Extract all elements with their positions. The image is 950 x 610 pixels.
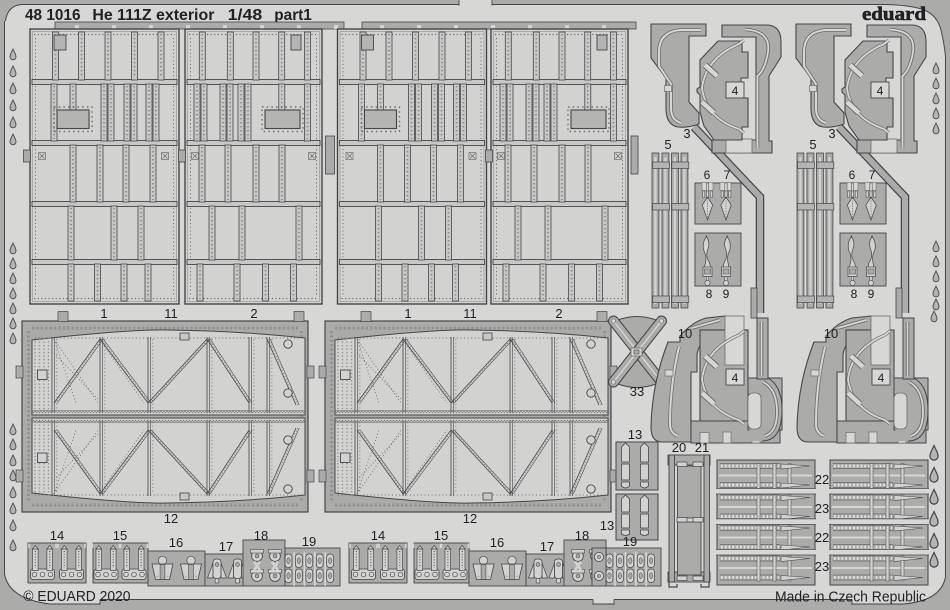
svg-text:8: 8 [851,287,858,301]
svg-text:11: 11 [164,306,178,321]
svg-text:15: 15 [113,528,127,543]
svg-text:3: 3 [683,126,690,141]
svg-text:2: 2 [555,306,562,321]
svg-text:© EDUARD 2020: © EDUARD 2020 [23,589,130,605]
svg-text:19: 19 [623,534,637,549]
svg-text:10: 10 [824,326,838,341]
svg-text:12: 12 [164,511,178,526]
svg-text:16: 16 [169,535,183,550]
svg-text:19: 19 [302,534,316,549]
svg-text:1/48: 1/48 [228,7,263,24]
svg-text:2: 2 [250,306,257,321]
svg-text:6: 6 [704,168,711,182]
svg-text:14: 14 [50,528,64,543]
svg-text:14: 14 [371,528,385,543]
svg-text:4: 4 [732,84,739,98]
svg-text:7: 7 [869,168,876,182]
svg-text:4: 4 [877,84,884,98]
svg-text:33: 33 [630,384,644,399]
svg-text:18: 18 [575,528,589,543]
svg-text:part1: part1 [274,7,312,24]
svg-text:23: 23 [815,559,829,574]
svg-text:8: 8 [706,287,713,301]
svg-text:eduard: eduard [862,4,926,25]
svg-text:5: 5 [664,137,671,152]
svg-text:1: 1 [100,306,107,321]
svg-text:20: 20 [672,440,686,455]
svg-text:5: 5 [809,137,816,152]
svg-text:17: 17 [219,539,233,554]
svg-text:9: 9 [868,287,875,301]
svg-text:4: 4 [732,371,739,385]
svg-text:3: 3 [828,126,835,141]
svg-text:10: 10 [678,326,692,341]
svg-text:Made in Czech Republic: Made in Czech Republic [775,590,926,606]
svg-text:9: 9 [723,287,730,301]
svg-text:1: 1 [404,306,411,321]
svg-text:He 111Z exterior: He 111Z exterior [92,7,214,24]
svg-text:12: 12 [463,511,477,526]
svg-text:22: 22 [815,472,829,487]
svg-text:48 1016: 48 1016 [25,7,81,24]
svg-text:16: 16 [490,535,504,550]
svg-text:17: 17 [540,539,554,554]
svg-text:6: 6 [849,168,856,182]
svg-text:21: 21 [695,440,709,455]
svg-text:13: 13 [600,518,614,533]
svg-text:22: 22 [815,530,829,545]
svg-text:13: 13 [628,427,642,442]
svg-text:23: 23 [815,501,829,516]
svg-text:4: 4 [878,371,885,385]
svg-text:15: 15 [434,528,448,543]
svg-text:7: 7 [724,168,731,182]
svg-text:18: 18 [254,528,268,543]
svg-text:11: 11 [463,306,477,321]
